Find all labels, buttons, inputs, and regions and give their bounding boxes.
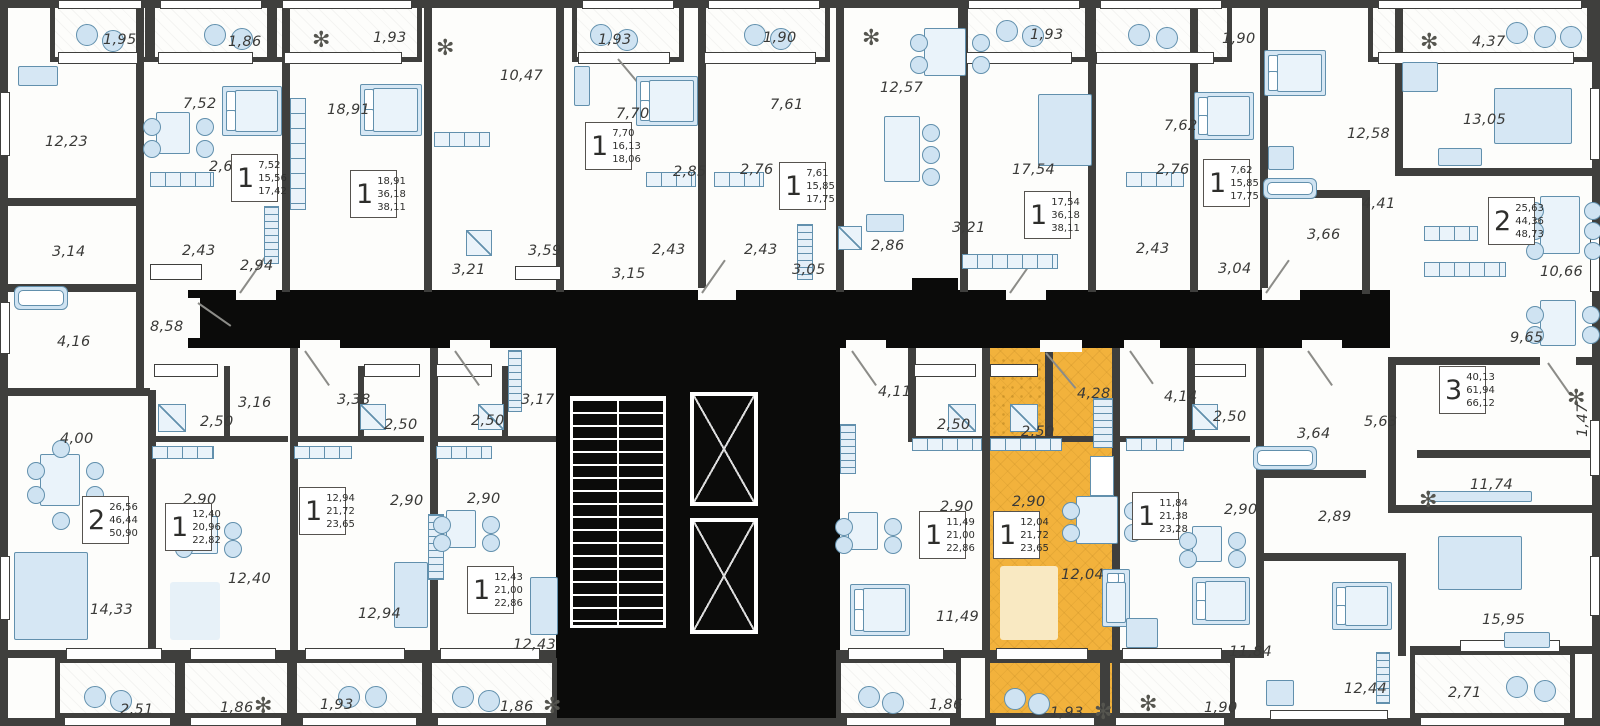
window (582, 0, 674, 9)
apartment-rooms-count: 2 (1494, 208, 1511, 235)
door-opening (1540, 355, 1576, 367)
elevator-shaft (690, 392, 758, 506)
apartment-info-badge[interactable]: 340,1361,9466,12 (1439, 366, 1486, 414)
apartment-info-badge[interactable]: 17,6215,8517,75 (1203, 159, 1250, 207)
balcony-chair-icon (1534, 680, 1556, 702)
door-opening (1040, 340, 1082, 352)
window (158, 52, 253, 64)
balcony-chair-icon (996, 20, 1018, 42)
furniture-icon (1438, 148, 1482, 166)
apartment-info-badge[interactable]: 17,5215,5617,42 (231, 154, 278, 202)
apartment-info-badge[interactable]: 17,6115,8517,75 (779, 162, 826, 210)
furniture-icon (14, 552, 88, 640)
balcony-chair-icon (882, 692, 904, 714)
apartment-info-badge[interactable]: 118,9136,1838,11 (350, 170, 397, 218)
kitchen-counter-icon (1424, 226, 1478, 241)
window (1096, 52, 1214, 64)
apartment-rooms-count: 1 (1209, 170, 1226, 197)
window (64, 717, 171, 726)
furniture-icon (1268, 146, 1294, 170)
window (150, 264, 202, 280)
staircase (570, 396, 666, 628)
apartment-rooms-count: 1 (785, 173, 802, 200)
chair-icon (1584, 202, 1600, 220)
wall (424, 8, 432, 292)
window (282, 0, 412, 9)
shower-icon (466, 230, 492, 256)
chair-icon (884, 536, 902, 554)
wardrobe-icon (840, 424, 856, 474)
chair-icon (27, 462, 45, 480)
window (58, 0, 142, 9)
apartment-area-values: 12,0421,7223,65 (1020, 516, 1049, 555)
balcony-chair-icon (1128, 24, 1150, 46)
wall (436, 436, 556, 442)
chair-icon (1584, 242, 1600, 260)
window (846, 717, 951, 726)
window (704, 52, 816, 64)
apartment-info-badge[interactable]: 112,4321,0022,86 (467, 566, 514, 614)
chair-icon (482, 516, 500, 534)
balcony-chair-icon (1004, 688, 1026, 710)
apartment-info-badge[interactable]: 112,4020,9622,82 (165, 503, 212, 551)
furniture-icon (1076, 496, 1118, 544)
balcony-chair-icon (1506, 676, 1528, 698)
window (1100, 0, 1222, 9)
wall (290, 348, 298, 656)
chair-icon (972, 56, 990, 74)
chair-icon (1062, 524, 1080, 542)
window (364, 364, 420, 377)
wall (0, 388, 150, 396)
window (154, 364, 218, 377)
apartment-rooms-count: 1 (237, 165, 254, 192)
window (1590, 232, 1600, 292)
furniture-icon (18, 66, 58, 86)
furniture-icon (1438, 536, 1522, 590)
chair-icon (922, 146, 940, 164)
balcony-chair-icon (452, 686, 474, 708)
window (0, 556, 10, 620)
apartment-rooms-count: 1 (171, 514, 188, 541)
wall (136, 292, 144, 396)
apartment-rooms-count: 1 (1030, 202, 1047, 229)
chair-icon (910, 34, 928, 52)
balcony-chair-icon (1028, 693, 1050, 715)
apartment-rooms-count: 1 (305, 498, 322, 525)
chair-icon (1526, 306, 1544, 324)
window (968, 0, 1080, 9)
wall (148, 390, 156, 656)
balcony-chair-icon (84, 686, 106, 708)
balcony-chair-icon (1560, 26, 1582, 48)
apartment-area-values: 26,5646,4450,90 (109, 501, 138, 540)
furniture-icon (1126, 618, 1158, 648)
apartment-area-values: 7,6215,8517,75 (1230, 164, 1259, 203)
chair-icon (143, 118, 161, 136)
wardrobe-icon (264, 206, 279, 264)
window (515, 266, 561, 280)
wall (1395, 168, 1592, 176)
wall (1388, 357, 1396, 457)
chair-icon (1228, 550, 1246, 568)
apartment-area-values: 7,5215,5617,42 (258, 159, 287, 198)
apartment-info-badge[interactable]: 117,5436,1838,11 (1024, 191, 1071, 239)
balcony-chair-icon (76, 24, 98, 46)
chair-icon (1179, 550, 1197, 568)
window (578, 52, 670, 64)
window (996, 648, 1088, 660)
chair-icon (910, 56, 928, 74)
apartment-info-badge[interactable]: 112,9421,7223,65 (299, 487, 346, 535)
balcony (292, 658, 427, 718)
rug (1000, 566, 1058, 640)
apartment-area-values: 7,7016,1318,06 (612, 127, 641, 166)
window (914, 364, 976, 377)
apartment-area-values: 12,4321,0022,86 (494, 571, 523, 610)
chair-icon (433, 516, 451, 534)
window (58, 52, 138, 64)
furniture-icon (1266, 680, 1294, 706)
bed-icon (1192, 577, 1250, 625)
apartment-area-values: 18,9136,1838,11 (377, 175, 406, 214)
window (1122, 648, 1222, 660)
kitchen-counter-icon (912, 438, 982, 451)
bed-icon (1332, 582, 1392, 630)
corridor (188, 290, 1390, 348)
chair-icon (52, 512, 70, 530)
apartment-info-badge[interactable]: 225,6344,3648,73 (1488, 197, 1535, 245)
apartment-area-values: 12,4020,9622,82 (192, 508, 221, 547)
chair-icon (922, 168, 940, 186)
window (437, 717, 547, 726)
furniture-icon (1540, 300, 1576, 346)
window (1194, 364, 1246, 377)
balcony-chair-icon (204, 24, 226, 46)
chair-icon (143, 140, 161, 158)
kitchen-counter-icon (436, 446, 492, 459)
window (990, 364, 1038, 377)
chair-icon (433, 534, 451, 552)
chair-icon (1584, 222, 1600, 240)
window (0, 92, 10, 156)
wall (1256, 470, 1366, 478)
apartment-rooms-count: 2 (88, 507, 105, 534)
door-swing-icon (304, 350, 330, 386)
bathtub-icon (14, 286, 68, 310)
bed-icon (1264, 50, 1326, 96)
window (1378, 0, 1582, 9)
wardrobe-icon (1093, 398, 1113, 448)
wall (1398, 553, 1406, 656)
window (848, 648, 944, 660)
furniture-icon (40, 454, 80, 506)
chair-icon (224, 522, 242, 540)
bed-icon (222, 86, 282, 136)
chair-icon (196, 140, 214, 158)
chair-icon (835, 518, 853, 536)
apartment-info-badge-selected[interactable]: 112,0421,7223,65 (993, 511, 1040, 559)
furniture-icon (924, 28, 966, 76)
wall (296, 436, 424, 442)
chair-icon (1582, 326, 1600, 344)
window (1590, 556, 1600, 616)
bathtub-icon (1253, 446, 1317, 470)
apartment-info-badge[interactable]: 111,4921,0022,86 (919, 511, 966, 559)
kitchen-counter-icon (294, 446, 352, 459)
window (302, 717, 417, 726)
door-swing-icon (1129, 350, 1154, 384)
balcony-chair-icon (858, 686, 880, 708)
kitchen-counter-icon (1126, 438, 1184, 451)
wall (982, 348, 990, 656)
furniture-icon (574, 66, 590, 106)
apartment-rooms-count: 1 (925, 522, 942, 549)
door-swing-icon (1307, 350, 1333, 386)
chair-icon (224, 540, 242, 558)
elevator-shaft (690, 518, 758, 634)
window (190, 648, 276, 660)
kitchen-counter-icon (150, 172, 214, 187)
bathtub-icon (1263, 178, 1317, 199)
window (1270, 710, 1388, 720)
kitchen-counter-icon (962, 254, 1058, 269)
floor-plan: ✻✻✻✻✻✻✻✻✻✻1,951,861,931,931,901,931,904,… (0, 0, 1600, 726)
window (66, 648, 162, 660)
furniture-icon (866, 214, 904, 232)
furniture-icon (1038, 94, 1092, 166)
chair-icon (835, 536, 853, 554)
furniture-icon (156, 112, 190, 154)
wall (1417, 450, 1592, 458)
apartment-rooms-count: 3 (1445, 377, 1462, 404)
furniture-icon (1504, 632, 1550, 648)
window (1420, 717, 1565, 726)
wardrobe-icon (508, 350, 522, 412)
bed-icon (1194, 92, 1254, 140)
ventilation-shaft (912, 278, 958, 348)
kitchen-counter-icon (290, 98, 306, 210)
chair-icon (1228, 532, 1246, 550)
chair-icon (196, 118, 214, 136)
shower-icon (838, 226, 862, 250)
balcony-chair-icon (1156, 27, 1178, 49)
chair-icon (922, 124, 940, 142)
balcony-chair-icon (1506, 22, 1528, 44)
fridge-icon (1090, 456, 1114, 496)
kitchen-counter-icon (152, 446, 214, 459)
window (1590, 420, 1600, 476)
apartment-rooms-count: 1 (999, 522, 1016, 549)
bed-icon (850, 584, 910, 636)
apartment-rooms-count: 1 (473, 577, 490, 604)
window (708, 0, 820, 9)
balcony-chair-icon (1534, 26, 1556, 48)
shower-icon (158, 404, 186, 432)
chair-icon (972, 34, 990, 52)
window (1590, 88, 1600, 160)
apartment-area-values: 17,5436,1838,11 (1051, 196, 1080, 235)
furniture-icon (530, 577, 558, 635)
window (0, 302, 10, 354)
rug (170, 582, 220, 640)
apartment-info-badge[interactable]: 226,5646,4450,90 (82, 496, 129, 544)
chair-icon (86, 462, 104, 480)
apartment-area-values: 11,4921,0022,86 (946, 516, 975, 555)
apartment-area-values: 11,8421,3823,28 (1159, 497, 1188, 536)
kitchen-counter-icon (1424, 262, 1506, 277)
wall (1260, 553, 1402, 561)
wall (0, 198, 144, 206)
furniture-icon (884, 116, 920, 182)
balcony-chair-icon (365, 686, 387, 708)
window (284, 52, 402, 64)
wall (224, 366, 230, 442)
door-swing-icon (851, 350, 877, 386)
apartment-area-values: 25,6344,3648,73 (1515, 202, 1544, 241)
apartment-info-badge[interactable]: 111,8421,3823,28 (1132, 492, 1179, 540)
chair-icon (27, 486, 45, 504)
apartment-area-values: 7,6115,8517,75 (806, 167, 835, 206)
chair-icon (1062, 502, 1080, 520)
chair-icon (884, 518, 902, 536)
balcony-chair-icon (478, 690, 500, 712)
apartment-area-values: 12,9421,7223,65 (326, 492, 355, 531)
window (160, 0, 262, 9)
chair-icon (482, 534, 500, 552)
wall (430, 348, 438, 656)
apartment-info-badge[interactable]: 17,7016,1318,06 (585, 122, 632, 170)
apartment-area-values: 40,1361,9466,12 (1466, 371, 1495, 410)
furniture-icon (1540, 196, 1580, 254)
apartment-rooms-count: 1 (1138, 503, 1155, 530)
wall (1388, 450, 1396, 513)
window (305, 648, 405, 660)
apartment-rooms-count: 1 (356, 181, 373, 208)
window (1115, 717, 1225, 726)
kitchen-counter-icon (434, 132, 490, 147)
chair-icon (1582, 306, 1600, 324)
furniture-icon (1402, 62, 1438, 92)
apartment-rooms-count: 1 (591, 133, 608, 160)
wall (148, 436, 288, 442)
